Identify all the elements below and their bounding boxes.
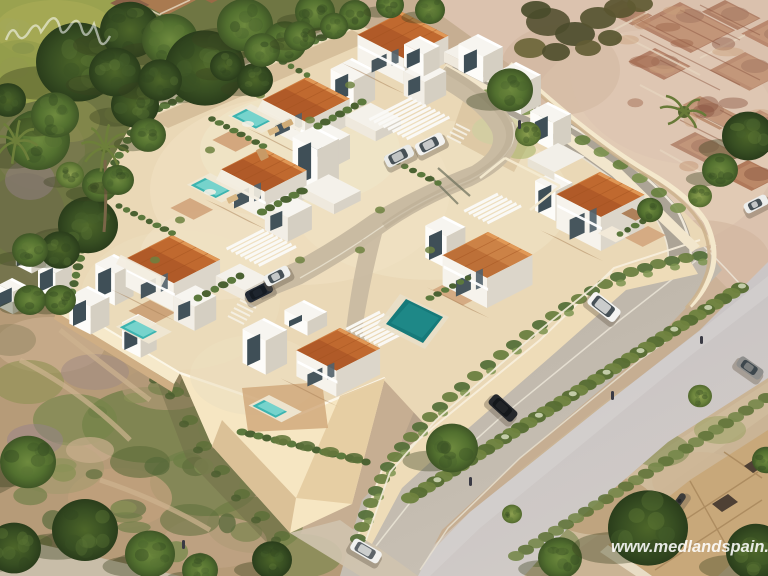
svg-text:www.medlandspain.c: www.medlandspain.c [611,538,768,556]
